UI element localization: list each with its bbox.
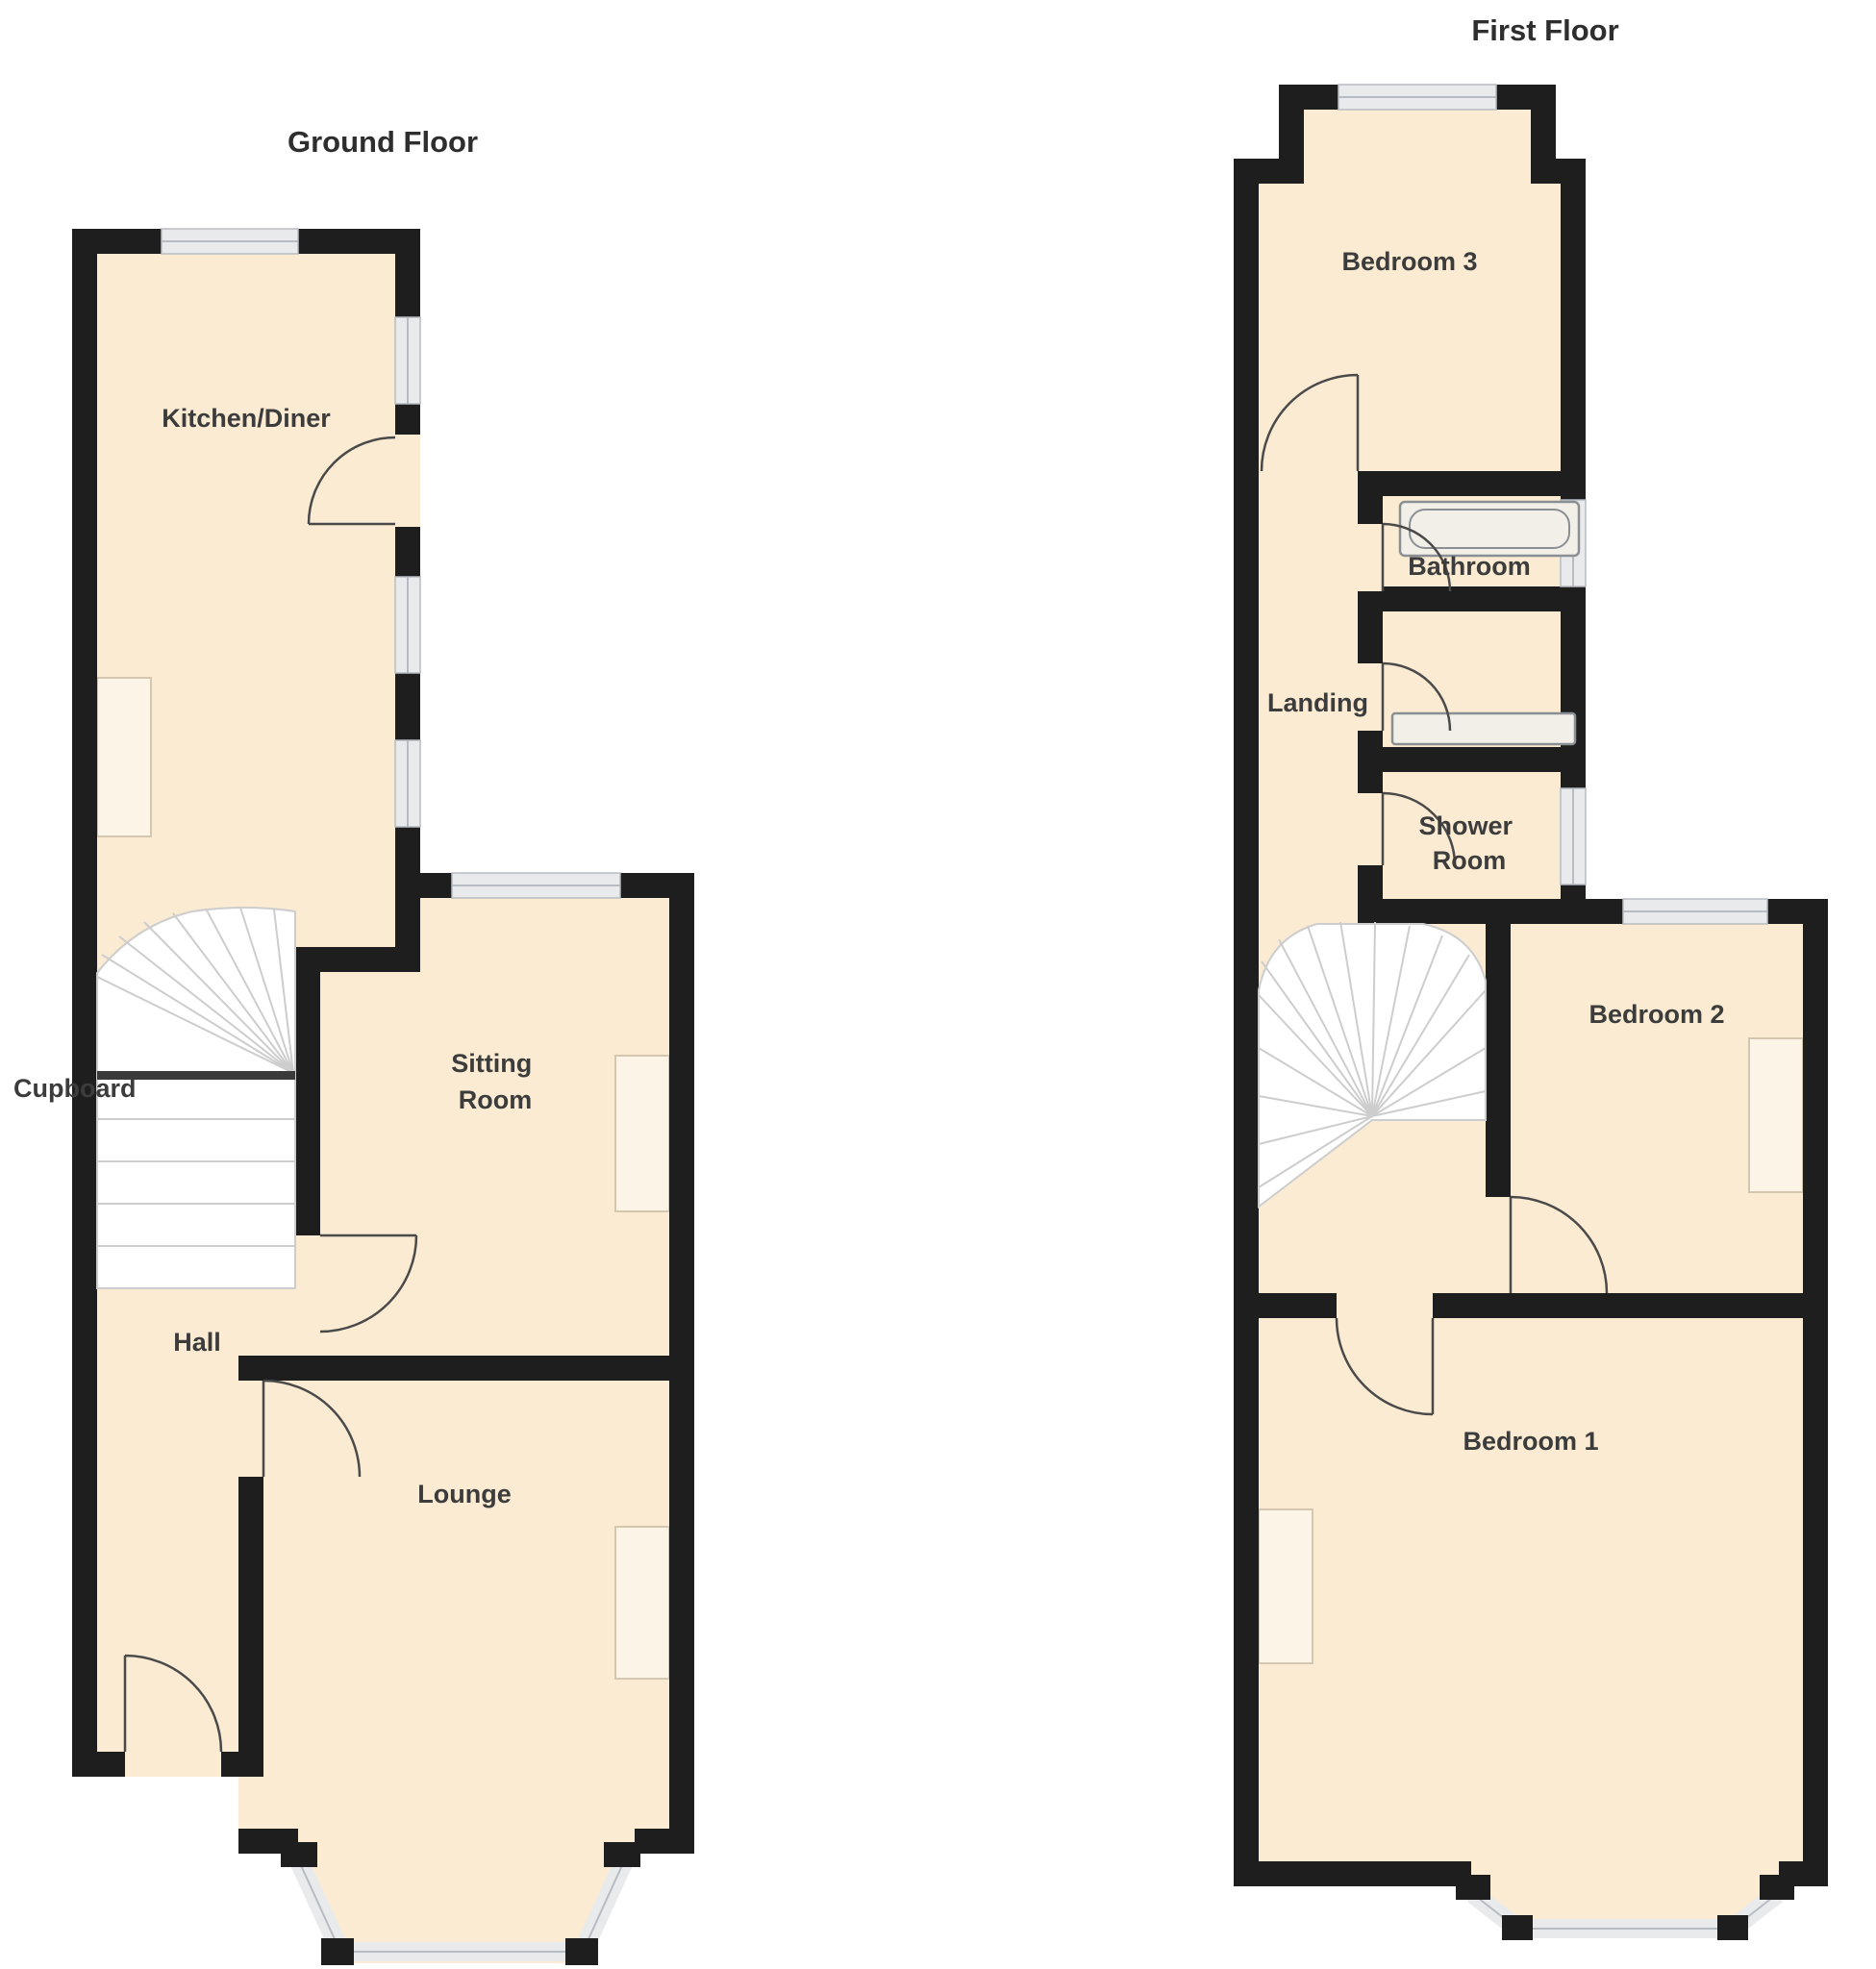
room-label-bedroom-1: Bedroom 1 (1463, 1427, 1598, 1456)
room-label-bedroom-2: Bedroom 2 (1588, 1000, 1724, 1029)
ground-floor-plan: Ground Floor (13, 125, 694, 1965)
bay-opening-gap (298, 1829, 635, 1854)
bay-opening-gap-first (1471, 1861, 1779, 1886)
lounge-door-gap (238, 1381, 263, 1477)
first-floor-plan: First Floor (1234, 13, 1828, 1940)
room-label-lounge: Lounge (417, 1480, 511, 1508)
bathroom-door-gap (1358, 524, 1383, 591)
kitchen-door-gap (395, 435, 420, 527)
floorplan-page: Ground Floor (0, 0, 1876, 1969)
first-floor-title: First Floor (1471, 13, 1618, 47)
bedroom1-door-gap (1337, 1293, 1433, 1318)
shower-room-door-gap (1358, 793, 1383, 865)
floorplan-drawing: Ground Floor (0, 0, 1876, 1969)
sitting-room-recess (615, 1056, 669, 1211)
front-door-gap (125, 1752, 221, 1777)
room-label-landing: Landing (1267, 688, 1368, 717)
bedroom1-recess (1259, 1509, 1313, 1663)
room-label-hall: Hall (173, 1328, 221, 1357)
room-label-cupboard: Cupboard (13, 1074, 137, 1103)
kitchen-recess (97, 678, 151, 836)
bedroom2-recess (1749, 1038, 1803, 1192)
ground-floor-title: Ground Floor (288, 125, 478, 159)
room-label-bedroom-3: Bedroom 3 (1341, 247, 1477, 276)
wc-fixture (1392, 713, 1575, 744)
room-label-kitchen-diner: Kitchen/Diner (162, 404, 331, 433)
room-label-bathroom: Bathroom (1408, 552, 1531, 581)
lounge-recess (615, 1527, 669, 1679)
